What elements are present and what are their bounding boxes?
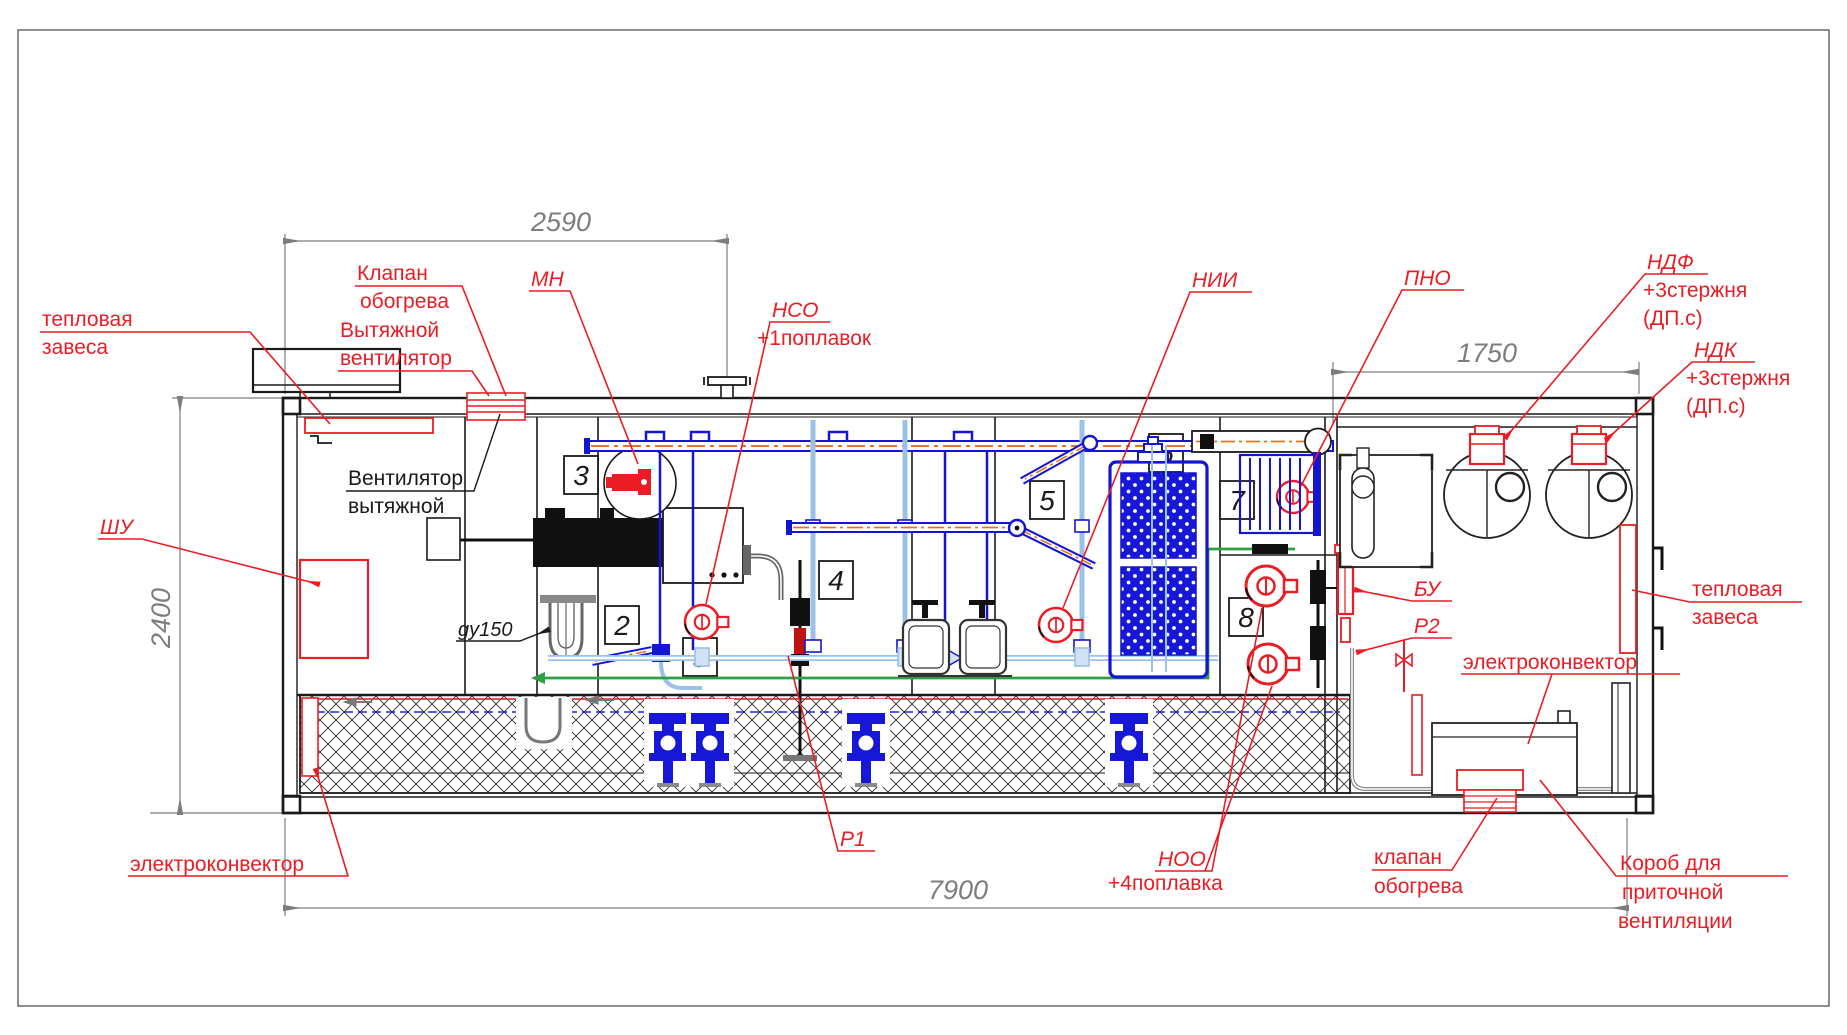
bottom-heating-valve	[1457, 770, 1523, 812]
label-valve-bottom-2: обогрева	[1374, 875, 1463, 898]
section-2-number: 2	[613, 610, 630, 641]
label-supply-duct-1: Короб для	[1620, 852, 1721, 875]
label-supply-duct-2: приточной	[1622, 881, 1723, 904]
label-p1: Р1	[840, 828, 866, 851]
label-noo-2: +4поплавка	[1108, 872, 1223, 895]
label-heat-curtain-left-2: завеса	[42, 336, 108, 359]
label-exhaust-black-2: вытяжной	[348, 495, 444, 518]
label-nso-2: +1поплавок	[757, 327, 872, 350]
section-7-number: 7	[1229, 485, 1246, 516]
heat-curtain-right-unit	[1620, 525, 1636, 653]
label-supply-duct-3: вентиляции	[1618, 910, 1733, 933]
control-console	[663, 508, 743, 583]
small-red-valve	[1396, 640, 1412, 692]
noo-pump-2	[1248, 644, 1299, 684]
mid-heating-pipe	[786, 520, 1094, 566]
label-valve-top-2: обогрева	[360, 290, 449, 313]
drawing-canvas: 2590 1750 2400 7900	[0, 0, 1847, 1035]
roof-vent	[704, 377, 750, 398]
label-valve-top-1: Клапан	[357, 262, 428, 285]
label-ndk-3: (ДП.с)	[1686, 395, 1746, 418]
label-valve-bottom-1: клапан	[1374, 846, 1442, 869]
roof-heating-valve	[467, 393, 525, 420]
label-electroconvector-left: электроконвектор	[130, 853, 304, 876]
section-3-number: 3	[573, 460, 589, 491]
nso-pump	[685, 605, 728, 639]
door-hinges	[1653, 548, 1662, 650]
label-noo-1: НОО	[1158, 848, 1206, 871]
heating-riser	[1412, 695, 1422, 775]
label-p2: Р2	[1414, 615, 1440, 638]
label-heat-curtain-right-2: завеса	[1692, 606, 1758, 629]
label-gy150: gy150	[458, 619, 513, 641]
section-4-number: 4	[828, 565, 844, 596]
section6-tanks	[1110, 437, 1207, 677]
label-shu: ШУ	[100, 516, 135, 539]
label-heat-curtain-right-1: тепловая	[1692, 578, 1783, 601]
label-exhaust-red-1: Вытяжной	[340, 319, 439, 342]
dim-left-text: 2400	[146, 588, 176, 649]
label-nso-1: НСО	[772, 299, 818, 322]
shu-cabinet	[300, 560, 368, 658]
dimension-1750	[1333, 362, 1639, 424]
label-ndk-2: +3стержня	[1686, 367, 1790, 390]
label-ndk-1: НДК	[1694, 339, 1738, 362]
dim-bottom-text: 7900	[928, 875, 988, 905]
floor-anchor	[686, 699, 734, 787]
insulated-floor	[297, 695, 1350, 793]
label-ndf-2: +3стержня	[1643, 279, 1747, 302]
technical-drawing-page: 2590 1750 2400 7900	[0, 0, 1847, 1035]
label-exhaust-red-2: вентилятор	[340, 347, 452, 370]
section7-expansion-cylinder	[1192, 429, 1331, 455]
label-exhaust-black-1: Вентилятор	[348, 467, 463, 490]
floor-anchor	[1105, 699, 1153, 787]
label-pno: ПНО	[1404, 267, 1451, 290]
electroconvector-left-unit	[302, 698, 318, 776]
supply-vent-duct	[1612, 683, 1630, 793]
dim-right-text: 1750	[1457, 338, 1517, 368]
ndk-level-sensor	[1572, 426, 1606, 464]
noo-pump-1	[1246, 566, 1297, 606]
label-bu: БУ	[1414, 578, 1442, 601]
gy150-filter	[540, 595, 596, 658]
pno-pump	[1277, 481, 1318, 513]
section-8-number: 8	[1238, 602, 1254, 633]
ndf-level-sensor	[1470, 426, 1504, 464]
dimension-2590	[285, 234, 727, 394]
section-5-number: 5	[1039, 485, 1055, 516]
floor-anchor	[644, 699, 692, 787]
nii-pump	[1039, 608, 1082, 642]
label-ndf-3: (ДП.с)	[1643, 307, 1703, 330]
label-mn: МН	[531, 268, 564, 291]
dim-top-text: 2590	[530, 207, 591, 237]
label-ndf-1: НДФ	[1647, 251, 1694, 274]
heat-curtain-left-unit	[305, 418, 433, 443]
mn-pump-unit	[604, 447, 676, 519]
label-nii: НИИ	[1192, 269, 1238, 292]
label-heat-curtain-left-1: тепловая	[42, 308, 133, 331]
water-heater-cabinet	[1340, 448, 1432, 567]
floor-anchor	[842, 699, 890, 787]
floor-drain-u-pipe	[516, 697, 572, 749]
label-electroconvector-right: электроконвектор	[1463, 651, 1637, 674]
